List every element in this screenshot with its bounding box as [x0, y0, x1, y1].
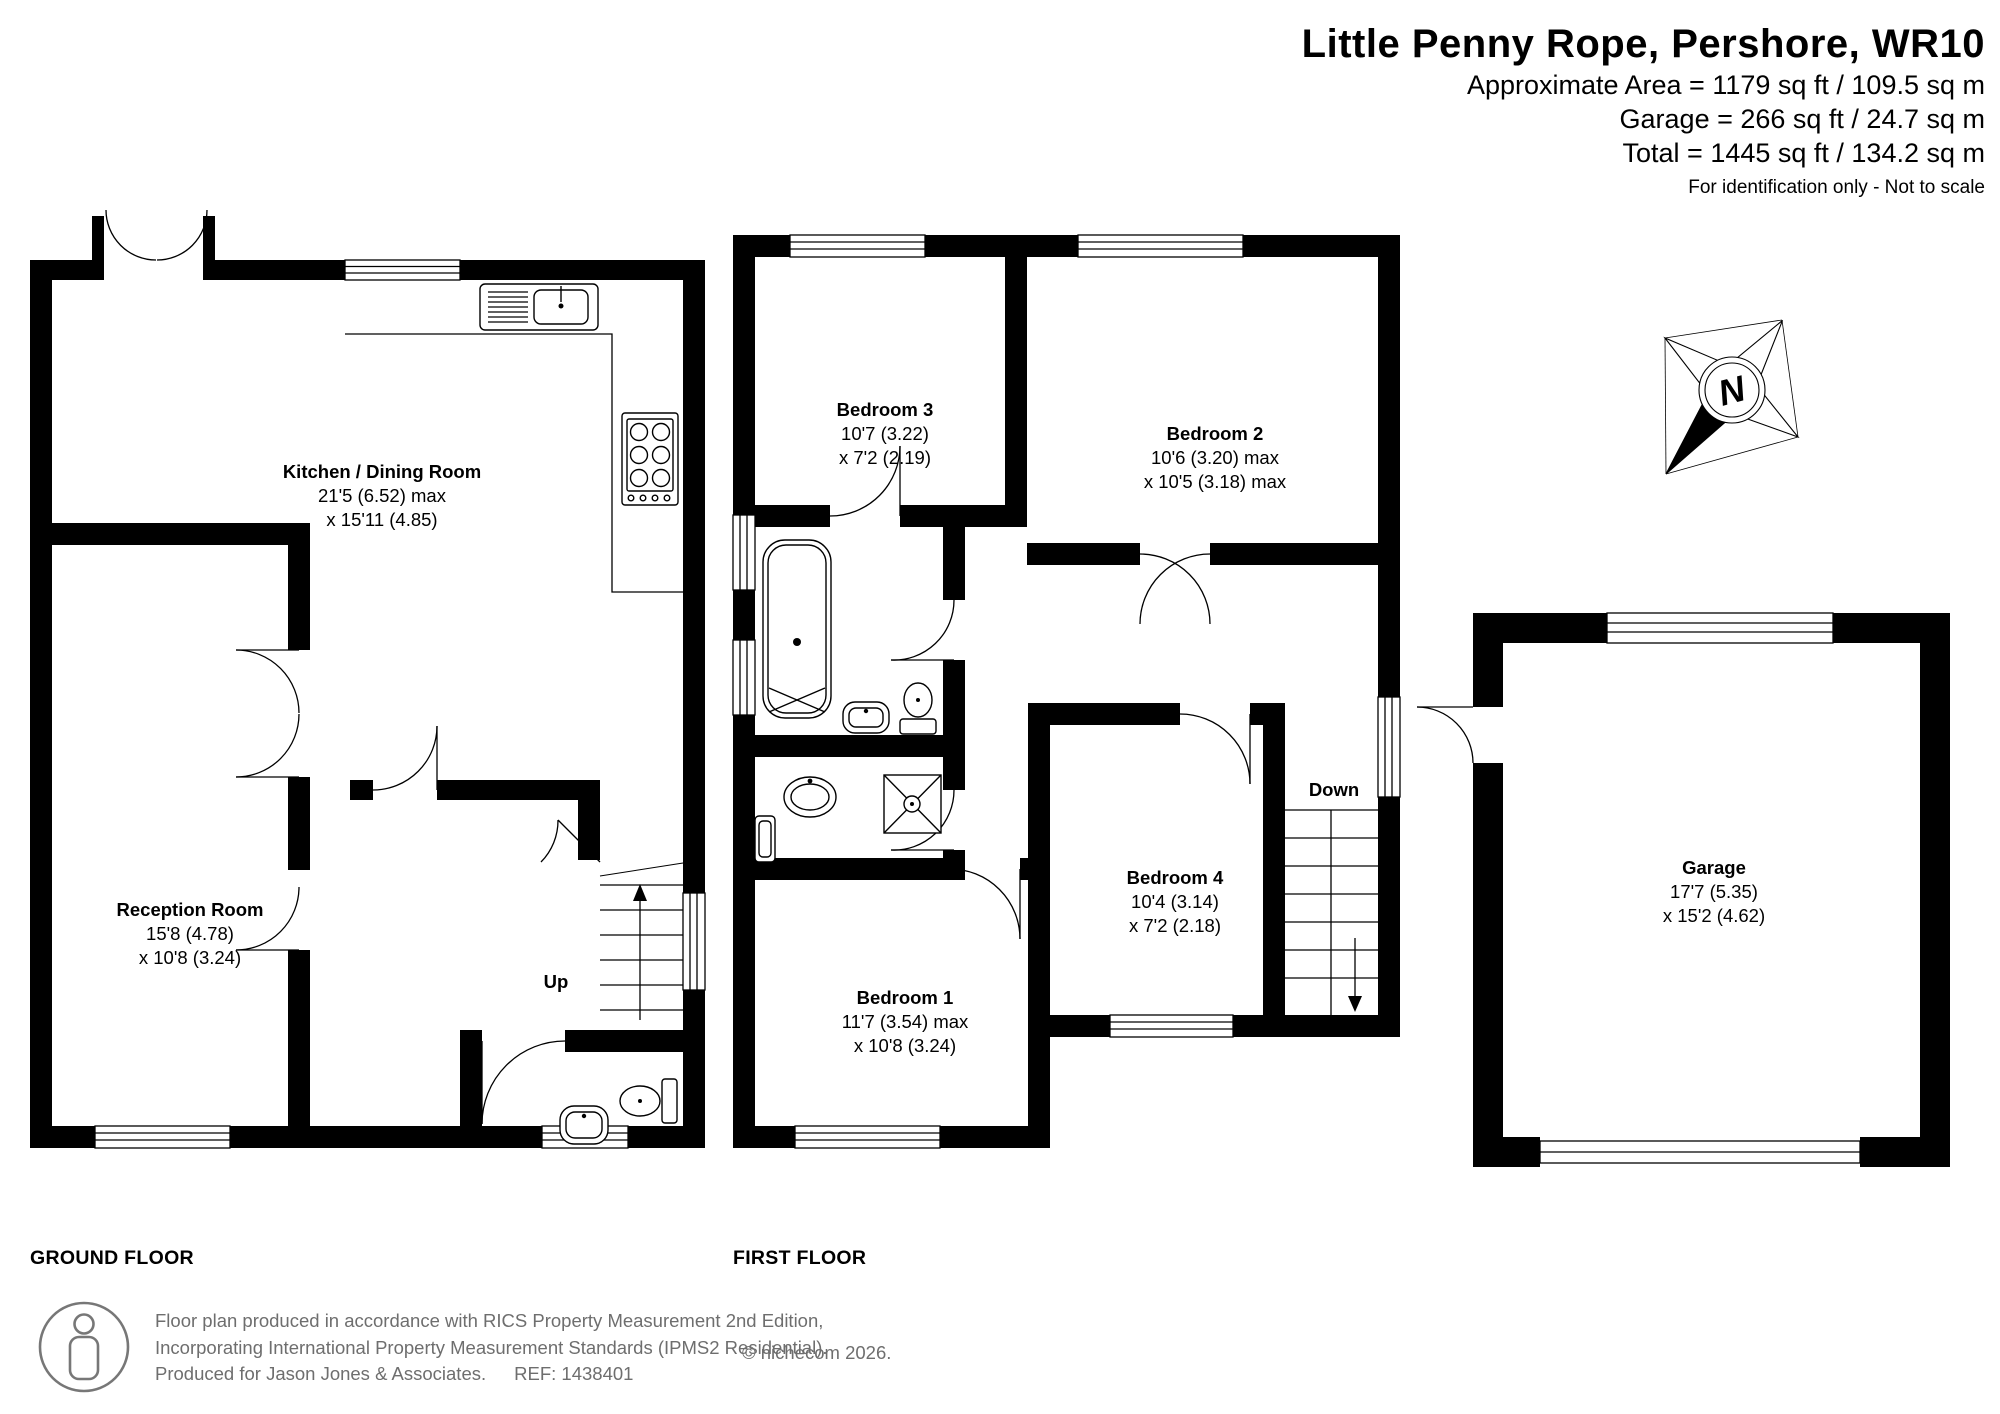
footer-disclaimer: Floor plan produced in accordance with R… — [155, 1308, 828, 1388]
window — [790, 235, 925, 257]
header: Little Penny Rope, Pershore, WR10 Approx… — [1302, 22, 1985, 199]
first-floor-plan — [733, 235, 1400, 1148]
garage-door — [1540, 1141, 1860, 1163]
ground-floor-plan — [30, 210, 705, 1148]
compass-rose: N — [1665, 320, 1798, 474]
bath-icon — [763, 540, 831, 718]
room-label-bedroom3: Bedroom 3 10'7 (3.22) x 7'2 (2.19) — [837, 398, 934, 470]
hob-icon — [622, 413, 678, 505]
window — [1378, 697, 1400, 797]
first-floor-label: FIRST FLOOR — [733, 1247, 866, 1270]
stairs-up-label: Up — [544, 971, 569, 993]
door-arc — [1417, 707, 1473, 763]
wall-basin-icon — [755, 816, 775, 862]
footer-line1: Floor plan produced in accordance with R… — [155, 1308, 828, 1335]
stairs-up — [600, 863, 683, 1020]
ground-floor-walls — [30, 216, 705, 1148]
room-label-kitchen: Kitchen / Dining Room 21'5 (6.52) max x … — [283, 460, 481, 532]
total-area: Total = 1445 sq ft / 134.2 sq m — [1302, 138, 1985, 169]
person-icon — [40, 1303, 128, 1391]
window — [1607, 613, 1833, 643]
window — [683, 893, 705, 990]
room-label-reception: Reception Room 15'8 (4.78) x 10'8 (3.24) — [117, 898, 264, 970]
room-label-bedroom4: Bedroom 4 10'4 (3.14) x 7'2 (2.18) — [1127, 866, 1224, 938]
floorplan-page: N Little Penny Rope, Pershore, WR10 Appr… — [0, 0, 2000, 1414]
ground-floor-label: GROUND FLOOR — [30, 1247, 194, 1270]
window — [1110, 1015, 1233, 1037]
toilet-icon — [900, 683, 936, 734]
reference-number: REF: 1438401 — [514, 1363, 633, 1384]
basin-icon — [560, 1106, 608, 1144]
window — [95, 1126, 230, 1148]
basin-icon — [784, 777, 836, 817]
stairs-down-label: Down — [1309, 779, 1359, 801]
kitchen-sink-icon — [480, 284, 598, 330]
produced-for: Produced for Jason Jones & Associates. — [155, 1363, 486, 1384]
approximate-area: Approximate Area = 1179 sq ft / 109.5 sq… — [1302, 70, 1985, 101]
footer-line3: Produced for Jason Jones & Associates.RE… — [155, 1361, 828, 1388]
first-floor-walls — [733, 235, 1400, 1148]
garage-area: Garage = 266 sq ft / 24.7 sq m — [1302, 104, 1985, 135]
window — [1078, 235, 1243, 257]
shower-icon — [884, 775, 941, 833]
room-label-bedroom2: Bedroom 2 10'6 (3.20) max x 10'5 (3.18) … — [1144, 422, 1286, 494]
room-label-bedroom1: Bedroom 1 11'7 (3.54) max x 10'8 (3.24) — [842, 986, 969, 1058]
door-arc — [106, 210, 600, 1124]
room-label-garage: Garage 17'7 (5.35) x 15'2 (4.62) — [1663, 856, 1765, 928]
window — [345, 260, 460, 280]
copyright: © nichecom 2026. — [742, 1342, 891, 1364]
stairs-down — [1285, 810, 1378, 1015]
window — [733, 640, 755, 715]
page-title: Little Penny Rope, Pershore, WR10 — [1302, 22, 1985, 67]
toilet-icon — [620, 1079, 677, 1123]
basin-icon — [843, 702, 889, 733]
window — [733, 515, 755, 590]
floorplan-drawing: N — [0, 0, 2000, 1414]
footer-line2: Incorporating International Property Mea… — [155, 1335, 828, 1362]
window — [795, 1126, 940, 1148]
disclaimer: For identification only - Not to scale — [1302, 177, 1985, 199]
